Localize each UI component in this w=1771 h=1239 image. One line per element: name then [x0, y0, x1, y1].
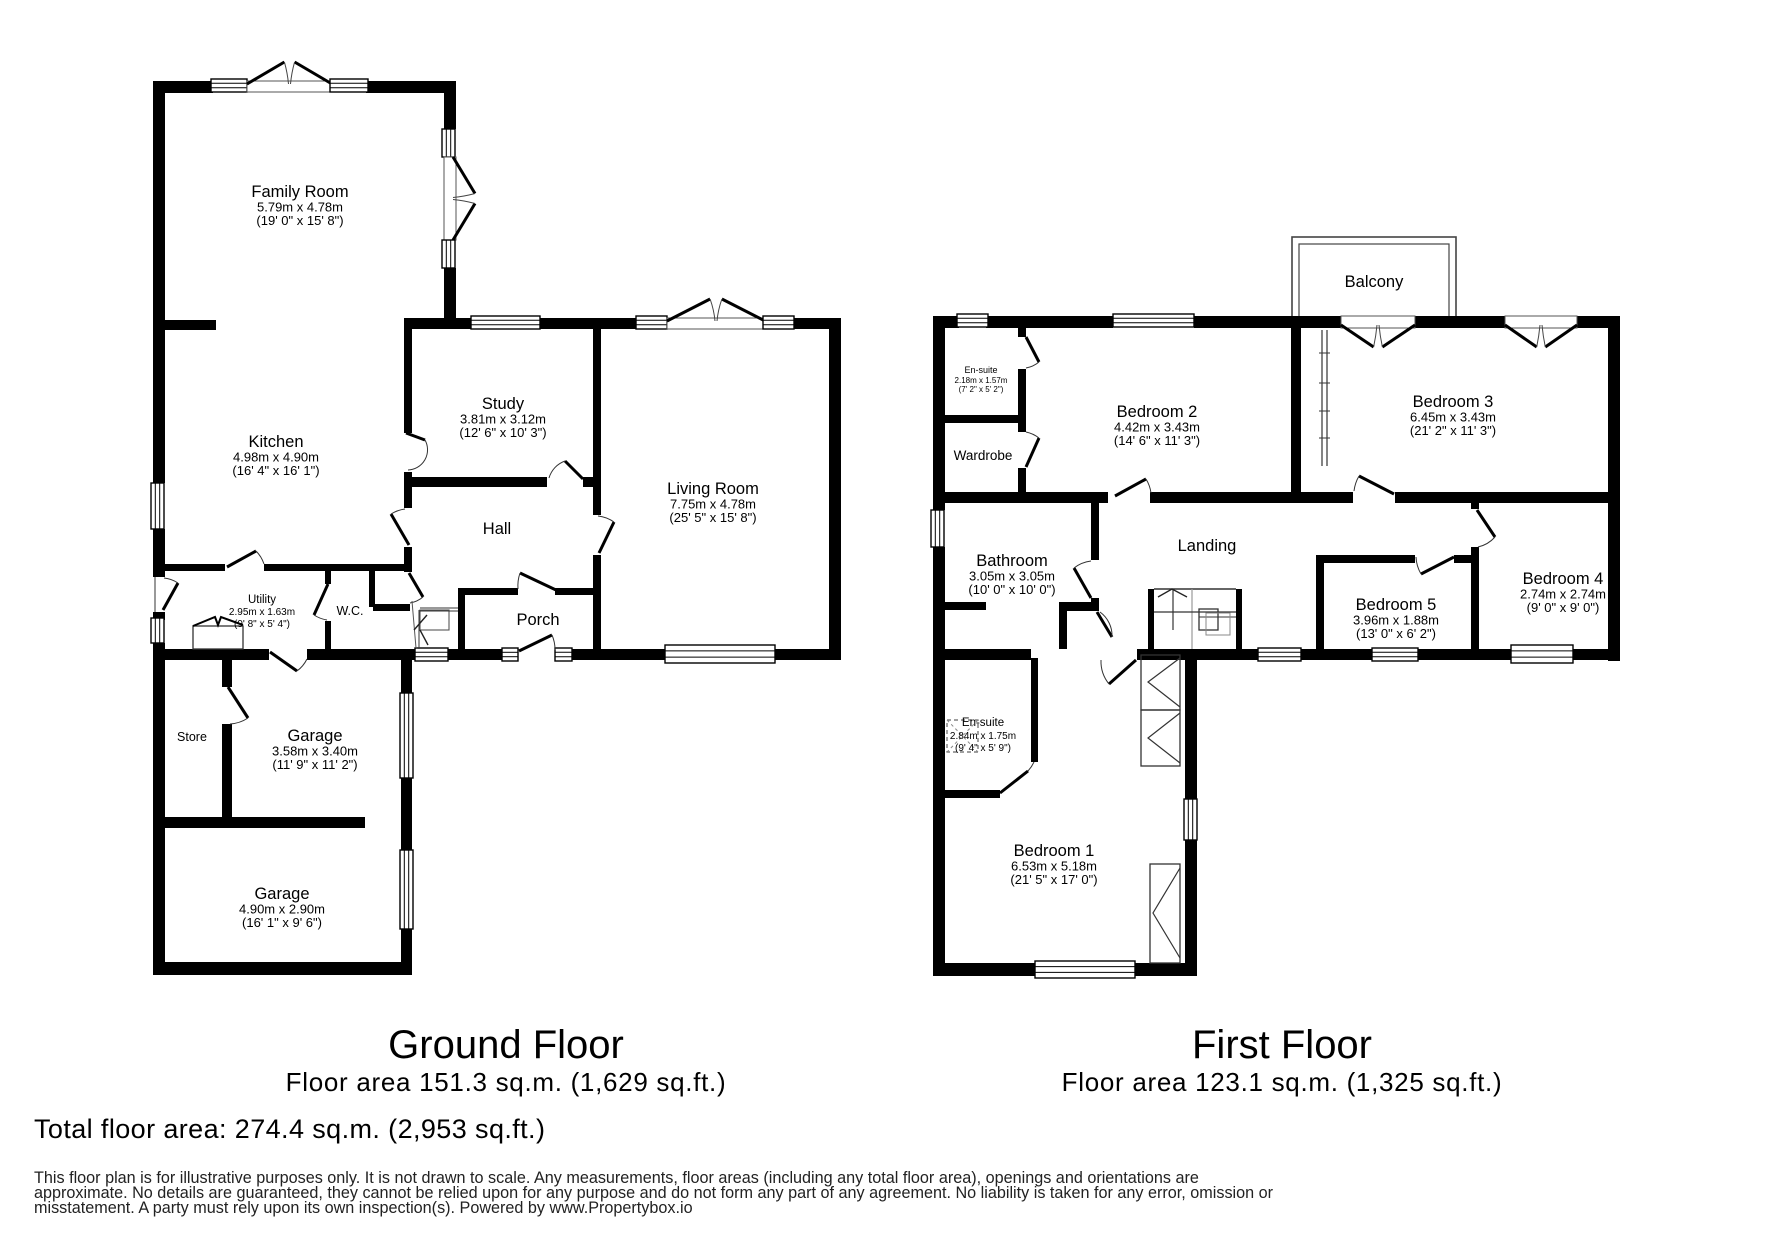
svg-text:En-suite: En-suite [962, 717, 1004, 729]
svg-text:Wardrobe: Wardrobe [954, 448, 1013, 463]
svg-text:(16' 1" x 9' 6"): (16' 1" x 9' 6") [242, 915, 322, 930]
svg-text:Balcony: Balcony [1345, 273, 1404, 291]
svg-text:(9' 8" x 5' 4"): (9' 8" x 5' 4") [234, 619, 290, 630]
svg-text:misstatement. A party must rel: misstatement. A party must rely upon its… [34, 1199, 693, 1217]
svg-text:Bedroom 3: Bedroom 3 [1413, 393, 1494, 411]
svg-text:Floor area 123.1 sq.m. (1,325: Floor area 123.1 sq.m. (1,325 sq.ft.) [1062, 1067, 1503, 1097]
svg-text:(10' 0" x 10' 0"): (10' 0" x 10' 0") [968, 582, 1055, 597]
svg-text:Ground Floor: Ground Floor [388, 1023, 624, 1067]
svg-text:(21' 5" x 17' 0"): (21' 5" x 17' 0") [1010, 872, 1097, 887]
svg-text:2.18m x 1.57m: 2.18m x 1.57m [955, 376, 1008, 385]
svg-text:Study: Study [482, 395, 525, 413]
svg-text:Bathroom: Bathroom [976, 552, 1048, 570]
svg-text:(14' 6" x 11' 3"): (14' 6" x 11' 3") [1114, 433, 1200, 448]
svg-text:Total floor area: 274.4 sq.m.: Total floor area: 274.4 sq.m. (2,953 sq.… [34, 1114, 545, 1144]
svg-text:En-suite: En-suite [964, 365, 997, 375]
svg-text:Family Room: Family Room [251, 183, 348, 201]
svg-text:(9' 0" x 9' 0"): (9' 0" x 9' 0") [1527, 600, 1600, 615]
svg-text:First Floor: First Floor [1192, 1023, 1372, 1067]
svg-text:Landing: Landing [1178, 537, 1237, 555]
svg-text:Garage: Garage [287, 727, 342, 745]
svg-text:(16' 4" x 16' 1"): (16' 4" x 16' 1") [232, 463, 319, 478]
svg-text:2.84m x 1.75m: 2.84m x 1.75m [950, 731, 1016, 742]
svg-text:Kitchen: Kitchen [248, 433, 303, 451]
svg-text:Store: Store [177, 730, 207, 744]
svg-text:Utility: Utility [248, 594, 276, 606]
svg-text:Hall: Hall [483, 520, 511, 538]
svg-text:(21' 2" x 11' 3"): (21' 2" x 11' 3") [1410, 423, 1496, 438]
svg-text:Living Room: Living Room [667, 480, 759, 498]
svg-text:Floor area 151.3 sq.m. (1,629: Floor area 151.3 sq.m. (1,629 sq.ft.) [286, 1067, 727, 1097]
svg-text:Porch: Porch [516, 611, 559, 629]
svg-text:W.C.: W.C. [336, 604, 363, 618]
svg-text:(9' 4" x 5' 9"): (9' 4" x 5' 9") [955, 743, 1011, 754]
svg-text:Bedroom 1: Bedroom 1 [1014, 842, 1095, 860]
svg-text:Garage: Garage [254, 885, 309, 903]
svg-text:(11' 9" x 11' 2"): (11' 9" x 11' 2") [272, 757, 357, 772]
svg-text:(7' 2" x 5' 2"): (7' 2" x 5' 2") [959, 385, 1004, 394]
svg-text:(25' 5" x 15' 8"): (25' 5" x 15' 8") [669, 510, 756, 525]
svg-text:(13' 0" x 6' 2"): (13' 0" x 6' 2") [1356, 626, 1436, 641]
svg-text:Bedroom 2: Bedroom 2 [1117, 403, 1198, 421]
svg-text:Bedroom 4: Bedroom 4 [1523, 570, 1604, 588]
svg-text:(12' 6" x 10' 3"): (12' 6" x 10' 3") [459, 425, 546, 440]
svg-text:(19' 0" x 15' 8"): (19' 0" x 15' 8") [256, 213, 343, 228]
svg-text:2.95m x 1.63m: 2.95m x 1.63m [229, 607, 295, 618]
svg-text:Bedroom 5: Bedroom 5 [1356, 596, 1437, 614]
